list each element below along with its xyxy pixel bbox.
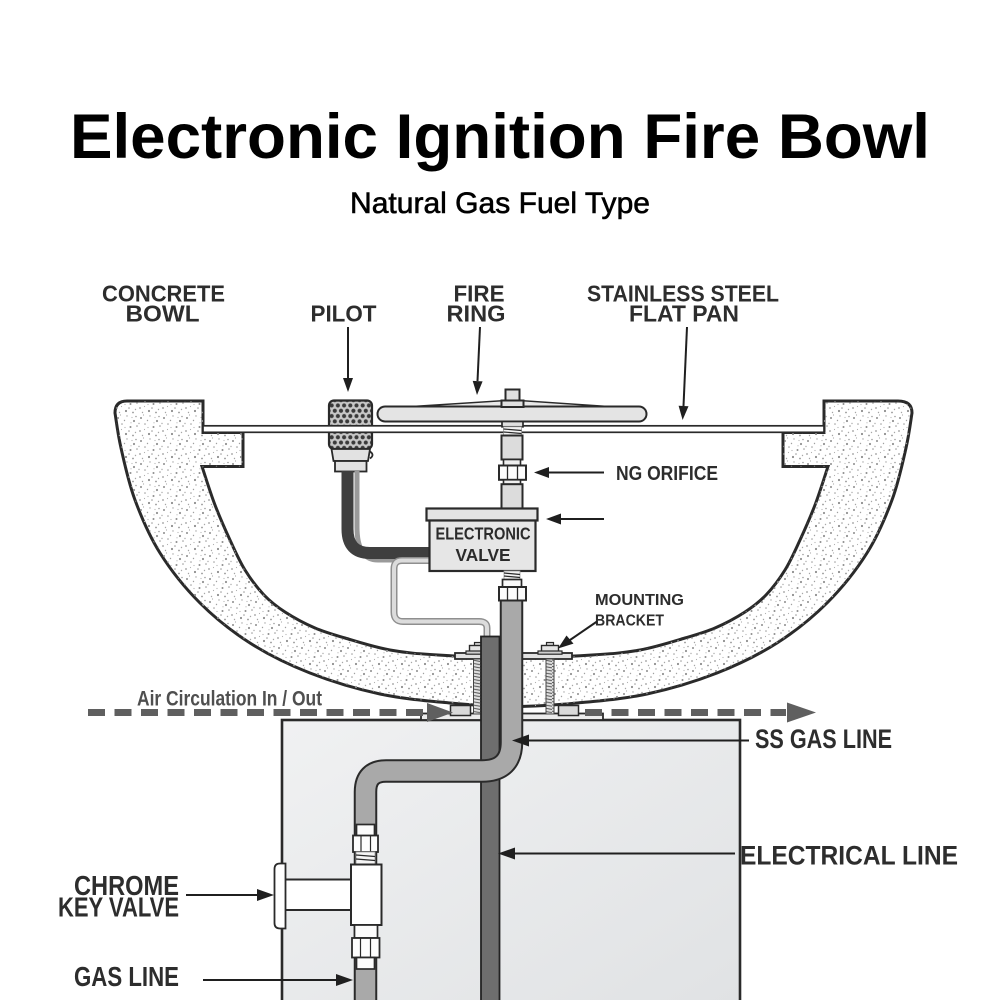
- svg-text:Natural Gas Fuel Type: Natural Gas Fuel Type: [350, 187, 650, 220]
- svg-text:KEY VALVE: KEY VALVE: [58, 892, 179, 923]
- svg-text:RING: RING: [447, 301, 506, 327]
- svg-text:FLAT PAN: FLAT PAN: [629, 301, 739, 327]
- svg-text:Electronic Ignition Fire Bowl: Electronic Ignition Fire Bowl: [70, 102, 930, 172]
- svg-text:Air Circulation In / Out: Air Circulation In / Out: [137, 688, 322, 711]
- svg-text:GAS LINE: GAS LINE: [74, 961, 179, 992]
- svg-text:ELECTRICAL LINE: ELECTRICAL LINE: [740, 841, 958, 871]
- svg-text:BOWL: BOWL: [126, 301, 200, 327]
- svg-text:NG ORIFICE: NG ORIFICE: [616, 462, 718, 485]
- svg-text:SS GAS LINE: SS GAS LINE: [755, 724, 892, 754]
- svg-text:VALVE: VALVE: [456, 545, 511, 565]
- svg-text:MOUNTING: MOUNTING: [595, 592, 684, 609]
- svg-text:BRACKET: BRACKET: [595, 613, 664, 630]
- svg-text:PILOT: PILOT: [311, 301, 378, 327]
- svg-text:ELECTRONIC: ELECTRONIC: [436, 524, 531, 544]
